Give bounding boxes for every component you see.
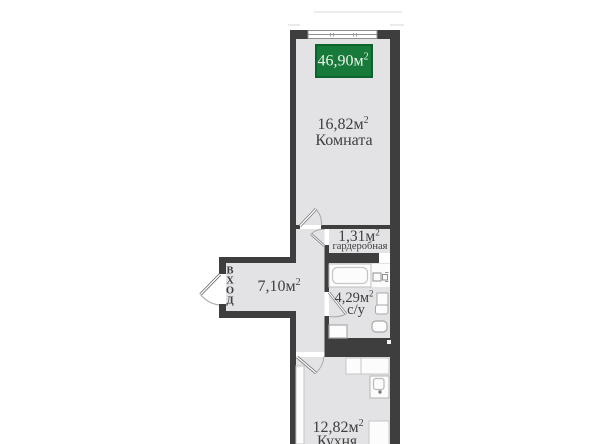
svg-text:гардеробная: гардеробная	[332, 241, 387, 252]
svg-text:Комната: Комната	[315, 132, 372, 149]
svg-text:Кухня: Кухня	[317, 433, 357, 444]
svg-text:с/у: с/у	[347, 302, 365, 318]
svg-text:Д: Д	[226, 296, 234, 307]
svg-text:46,90м2: 46,90м2	[317, 52, 368, 70]
svg-text:7,10м2: 7,10м2	[257, 277, 300, 295]
svg-text:16,82м2: 16,82м2	[317, 115, 368, 133]
